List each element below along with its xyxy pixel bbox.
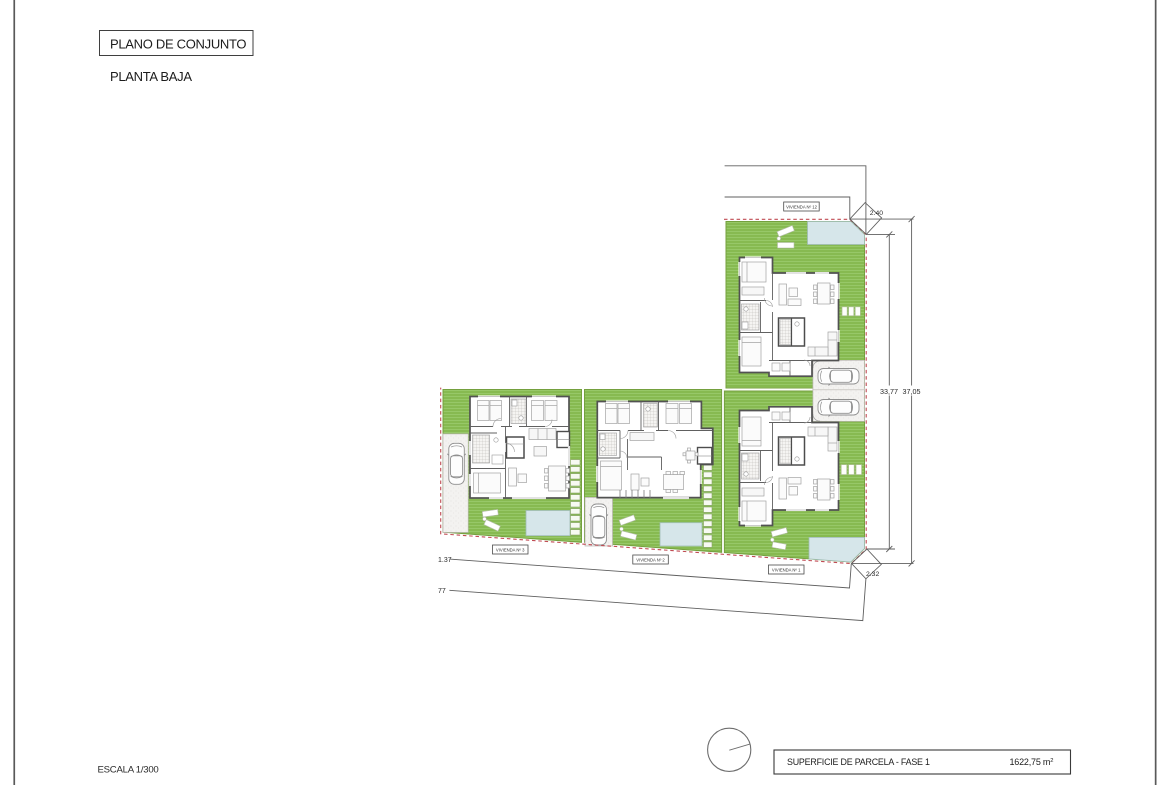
svg-text:PLANO DE CONJUNTO: PLANO DE CONJUNTO	[110, 37, 246, 52]
svg-text:VIVIENDA Nº 3: VIVIENDA Nº 3	[496, 548, 525, 553]
svg-text:1.37: 1.37	[438, 557, 452, 564]
svg-text:ESCALA 1/300: ESCALA 1/300	[98, 765, 159, 776]
svg-text:33,77: 33,77	[880, 387, 898, 396]
svg-text:1622,75 m2: 1622,75 m2	[1010, 757, 1054, 767]
svg-text:2.40: 2.40	[870, 210, 883, 217]
svg-text:SUPERFICIE DE PARCELA - FASE 1: SUPERFICIE DE PARCELA - FASE 1	[787, 757, 930, 767]
svg-text:VIVIENDA Nº 2: VIVIENDA Nº 2	[636, 558, 665, 563]
svg-text:PLANTA BAJA: PLANTA BAJA	[110, 69, 192, 84]
svg-text:37,05: 37,05	[903, 387, 921, 396]
svg-text:77: 77	[438, 588, 446, 595]
svg-text:VIVIENDA Nº 12: VIVIENDA Nº 12	[786, 205, 818, 210]
svg-text:VIVIENDA Nº 1: VIVIENDA Nº 1	[772, 568, 801, 573]
svg-text:2.32: 2.32	[866, 571, 879, 578]
